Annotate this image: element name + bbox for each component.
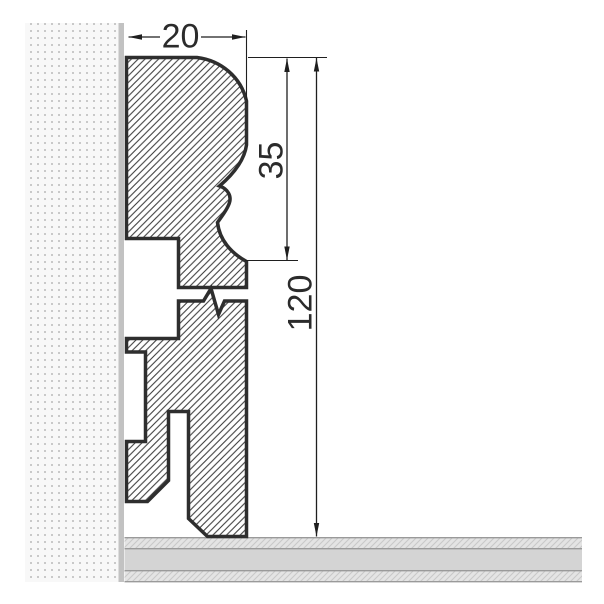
skirting-profile-technical-drawing: 20 35 120 <box>0 0 604 604</box>
dimension-upper-height-label: 35 <box>253 142 291 180</box>
floor-bottom-layer <box>125 571 583 582</box>
floor-middle-layer <box>125 549 583 571</box>
floor-section <box>125 538 583 582</box>
technical-drawing-canvas: 20 35 120 <box>0 0 604 604</box>
wall-edge-line <box>119 23 125 582</box>
dimension-total-height-label: 120 <box>282 275 320 332</box>
floor-top-layer <box>125 538 583 549</box>
wall-section <box>25 23 119 582</box>
dimension-width-label: 20 <box>162 18 200 56</box>
